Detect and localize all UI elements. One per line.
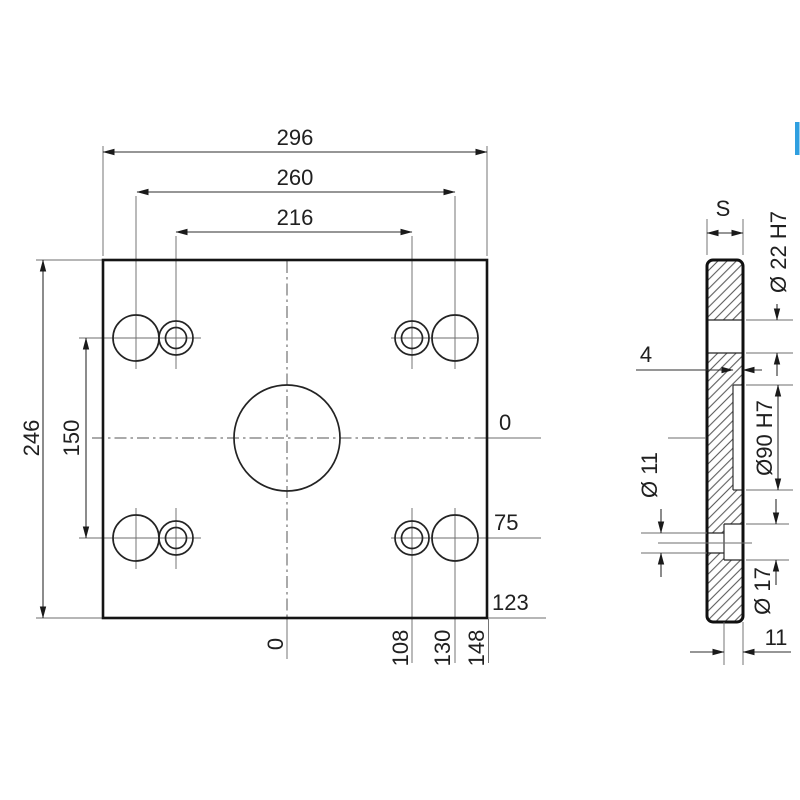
dim-label-hole-span-outer: 260 xyxy=(277,165,314,190)
dim-label-center-bore: Ø90 H7 xyxy=(752,400,777,476)
dim-label-recess-depth: 4 xyxy=(640,342,652,367)
ordinate-label-bottom-148: 148 xyxy=(464,630,489,667)
dim-label-hole-row-spacing: 150 xyxy=(59,420,84,457)
dim-label-hole-span-inner: 216 xyxy=(277,205,314,230)
side-section-view: S 4 Ø 22 H7 Ø90 H7 Ø 11 Ø 17 11 xyxy=(636,196,793,665)
hole-22-cutout xyxy=(709,320,742,353)
counterbore-17-cutout xyxy=(724,524,743,560)
dim-label-counterbore: Ø 17 xyxy=(750,567,775,615)
dim-label-outer-height: 246 xyxy=(19,420,44,457)
dimension-lines xyxy=(43,152,487,618)
ordinate-label-right-75: 75 xyxy=(494,510,518,535)
ordinate-label-right-123: 123 xyxy=(492,590,529,615)
dim-label-top-hole: Ø 22 H7 xyxy=(766,211,791,293)
ordinate-label-bottom-108: 108 xyxy=(388,630,413,667)
dim-label-outer-width: 296 xyxy=(277,125,314,150)
dim-label-thickness: S xyxy=(716,196,731,221)
technical-drawing: 296 260 216 246 150 0 75 123 0 108 130 1… xyxy=(0,0,800,800)
plate-outline xyxy=(103,260,487,618)
ordinate-label-right-zero: 0 xyxy=(499,410,511,435)
front-view: 296 260 216 246 150 0 75 123 0 108 130 1… xyxy=(19,125,546,666)
centerlines xyxy=(92,261,487,618)
dim-label-counterbore-depth: 11 xyxy=(765,625,788,650)
bore-90-recess xyxy=(733,385,742,490)
drawing-canvas: 296 260 216 246 150 0 75 123 0 108 130 1… xyxy=(0,0,800,800)
ordinate-label-bottom-130: 130 xyxy=(430,630,455,667)
dim-label-through-hole: Ø 11 xyxy=(637,452,662,498)
ordinate-label-bottom-zero: 0 xyxy=(263,638,288,650)
blue-edge-indicator[interactable] xyxy=(795,122,800,155)
